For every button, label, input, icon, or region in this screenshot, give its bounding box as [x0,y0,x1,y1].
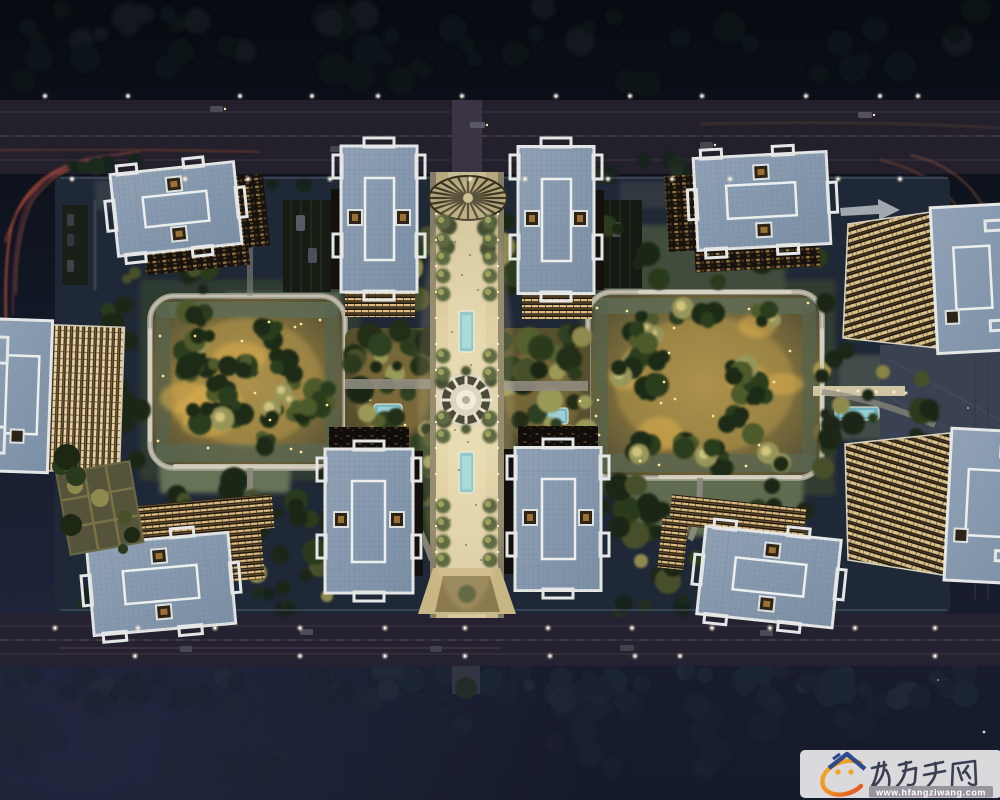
svg-text:www.hfangziwang.com: www.hfangziwang.com [875,788,986,798]
